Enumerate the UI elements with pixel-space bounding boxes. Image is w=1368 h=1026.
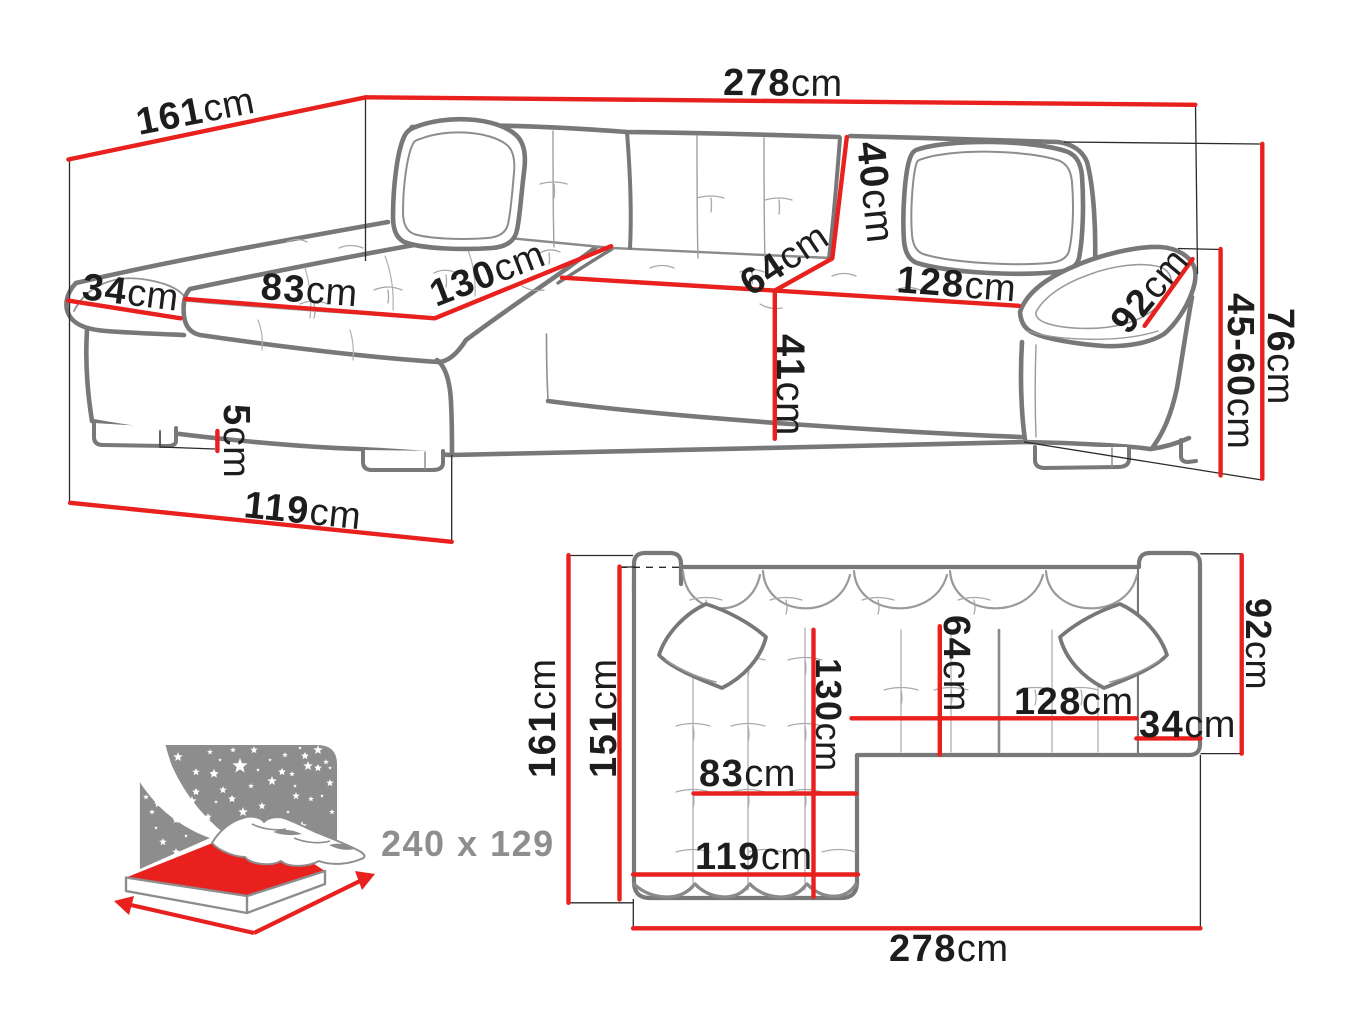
svg-text:130cm: 130cm xyxy=(808,658,849,772)
svg-text:40cm: 40cm xyxy=(848,139,902,245)
svg-text:151cm: 151cm xyxy=(583,658,625,778)
svg-text:119cm: 119cm xyxy=(242,484,363,538)
svg-text:119cm: 119cm xyxy=(695,836,812,878)
svg-text:83cm: 83cm xyxy=(259,266,359,315)
svg-text:5cm: 5cm xyxy=(215,404,257,478)
svg-text:64cm: 64cm xyxy=(935,615,977,712)
svg-text:76cm: 76cm xyxy=(1259,308,1301,405)
svg-text:278cm: 278cm xyxy=(723,62,843,105)
svg-text:92cm: 92cm xyxy=(1238,598,1279,690)
svg-text:41cm: 41cm xyxy=(768,334,812,436)
svg-text:240 x 129: 240 x 129 xyxy=(381,823,555,864)
svg-text:161cm: 161cm xyxy=(522,658,564,778)
svg-text:83cm: 83cm xyxy=(699,753,796,795)
svg-text:128cm: 128cm xyxy=(1014,681,1134,723)
svg-text:45-60cm: 45-60cm xyxy=(1219,293,1261,449)
svg-text:34cm: 34cm xyxy=(1139,704,1236,746)
svg-text:128cm: 128cm xyxy=(895,259,1017,310)
svg-text:278cm: 278cm xyxy=(889,928,1009,970)
